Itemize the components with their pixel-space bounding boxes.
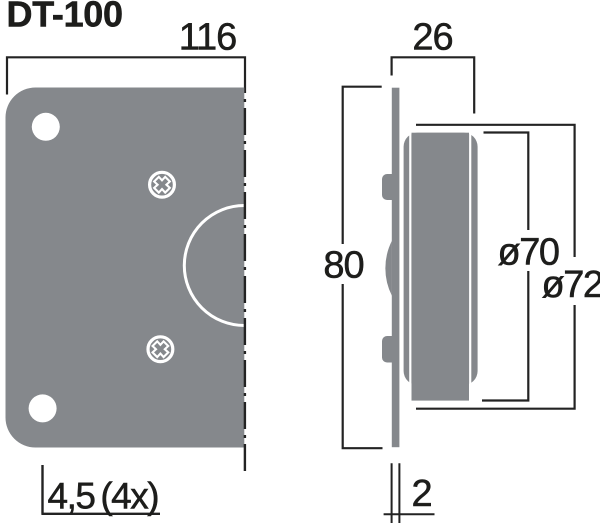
svg-text:2: 2 xyxy=(412,473,433,515)
svg-text:ø72: ø72 xyxy=(542,264,600,306)
svg-text:80: 80 xyxy=(323,244,363,286)
svg-text:26: 26 xyxy=(412,16,452,58)
svg-text:116: 116 xyxy=(179,16,237,58)
svg-text:4,5 (4x): 4,5 (4x) xyxy=(48,476,159,517)
svg-text:DT-100: DT-100 xyxy=(7,0,123,35)
